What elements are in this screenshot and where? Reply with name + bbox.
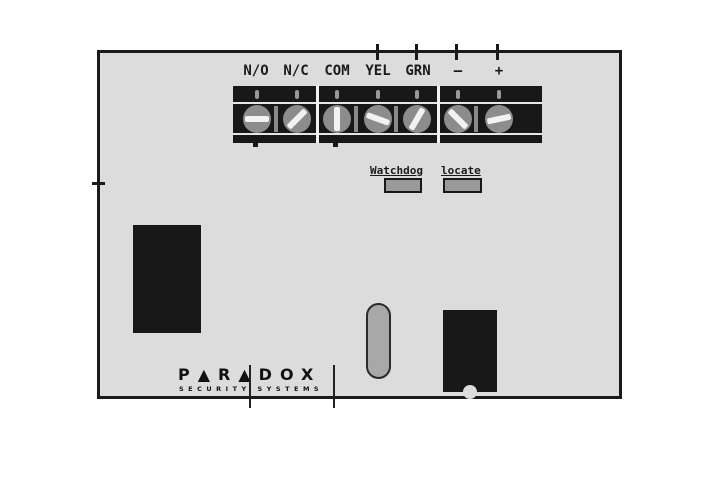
left-edge-tick [92,182,105,185]
block-pin [333,142,338,147]
terminal-group-divider [316,86,319,143]
wire-entry-slot [456,90,460,99]
screw-slot [245,116,269,122]
screw-slot [286,108,307,129]
terminal-label-no: N/O [243,63,268,79]
terminal-block [233,86,542,143]
screw-divider [274,106,278,132]
callout-line [249,365,251,408]
terminal-label-minus: — [454,63,462,79]
watchdog-led [384,178,422,193]
wire-entry-slot [295,90,299,99]
screw-slot [447,108,468,129]
screw-terminal-minus [444,105,472,133]
wire-entry-slot [497,90,501,99]
screw-divider [394,106,398,132]
screw-terminal-grn [403,105,431,133]
terminal-label-plus: + [495,63,503,79]
screw-terminal-com [323,105,351,133]
screw-divider [354,106,358,132]
screw-terminal-yel [364,105,392,133]
wire-entry-slot [376,90,380,99]
paradox-logo-subtitle: SECURITY SYSTEMS [179,385,323,393]
top-edge-tick [455,44,458,60]
terminal-label-grn: GRN [405,63,430,79]
component-notch [463,385,477,399]
callout-line [333,365,335,408]
locate-label: locate [441,164,481,177]
terminal-label-com: COM [324,63,349,79]
screw-slot [334,107,340,131]
screw-divider [474,106,478,132]
wire-entry-slot [415,90,419,99]
block-separator-line [233,133,542,135]
terminal-label-nc: N/C [283,63,308,79]
screw-slot [366,112,391,126]
terminal-label-yel: YEL [365,63,390,79]
terminal-group-divider [437,86,440,143]
watchdog-label: Watchdog [370,164,423,177]
diagram-canvas: N/O N/C COM YEL GRN — + Watc [0,0,728,490]
wire-entry-slot [255,90,259,99]
wire-entry-slot [335,90,339,99]
screw-terminal-plus [485,105,513,133]
screw-slot [487,114,512,125]
top-edge-tick [496,44,499,60]
relay-component [133,225,201,333]
ic-component [443,310,497,392]
screw-terminal-no [243,105,271,133]
top-edge-tick [415,44,418,60]
screw-terminal-nc [283,105,311,133]
screw-slot [408,107,425,131]
capacitor-component [366,303,391,379]
block-separator-line [233,102,542,104]
top-edge-tick [376,44,379,60]
block-pin [253,142,258,147]
locate-led [443,178,482,193]
